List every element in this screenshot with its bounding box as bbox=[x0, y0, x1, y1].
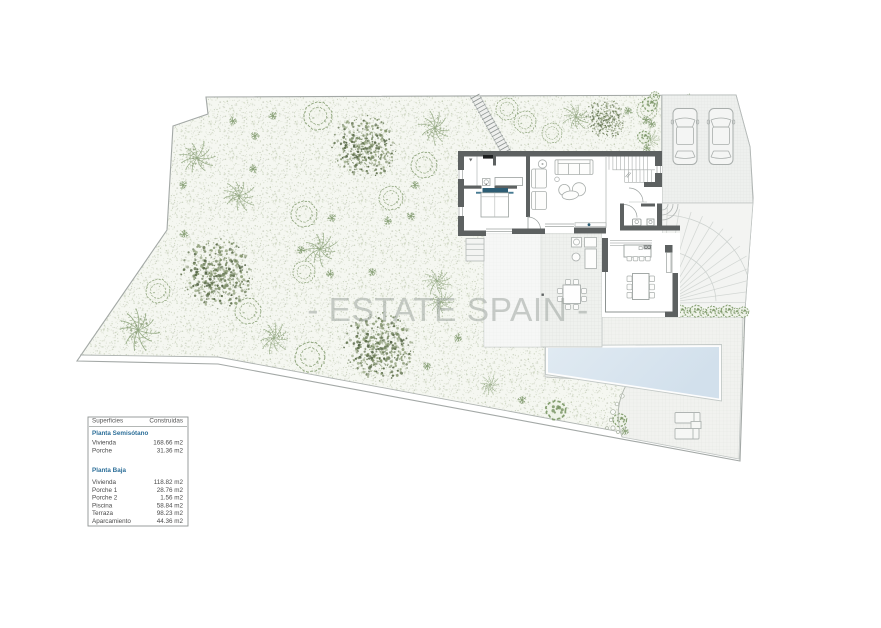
svg-text:- ESTATE SPAIN -: - ESTATE SPAIN - bbox=[307, 292, 589, 329]
svg-text:Vivienda: Vivienda bbox=[92, 479, 117, 486]
svg-text:28.76 m2: 28.76 m2 bbox=[157, 487, 184, 494]
svg-text:1.56 m2: 1.56 m2 bbox=[160, 495, 183, 502]
svg-text:Aparcamiento: Aparcamiento bbox=[92, 518, 131, 525]
svg-text:58.84 m2: 58.84 m2 bbox=[157, 502, 184, 509]
svg-text:Terraza: Terraza bbox=[92, 510, 113, 517]
svg-text:118.82 m2: 118.82 m2 bbox=[154, 479, 184, 486]
svg-text:98.23 m2: 98.23 m2 bbox=[157, 510, 184, 517]
svg-text:Piscina: Piscina bbox=[92, 502, 113, 509]
svg-text:44.36 m2: 44.36 m2 bbox=[157, 518, 184, 525]
svg-text:Planta Semisótano: Planta Semisótano bbox=[92, 430, 148, 437]
svg-text:Construidas: Construidas bbox=[149, 418, 183, 425]
svg-text:31.36 m2: 31.36 m2 bbox=[157, 448, 184, 455]
svg-text:Porche 1: Porche 1 bbox=[92, 487, 118, 494]
svg-text:Vivienda: Vivienda bbox=[92, 440, 117, 447]
svg-text:Porche 2: Porche 2 bbox=[92, 495, 118, 502]
svg-text:Porche: Porche bbox=[92, 448, 112, 455]
svg-text:Superficies: Superficies bbox=[92, 418, 123, 425]
svg-text:168.66 m2: 168.66 m2 bbox=[153, 440, 183, 447]
svg-text:Planta Baja: Planta Baja bbox=[92, 467, 126, 474]
